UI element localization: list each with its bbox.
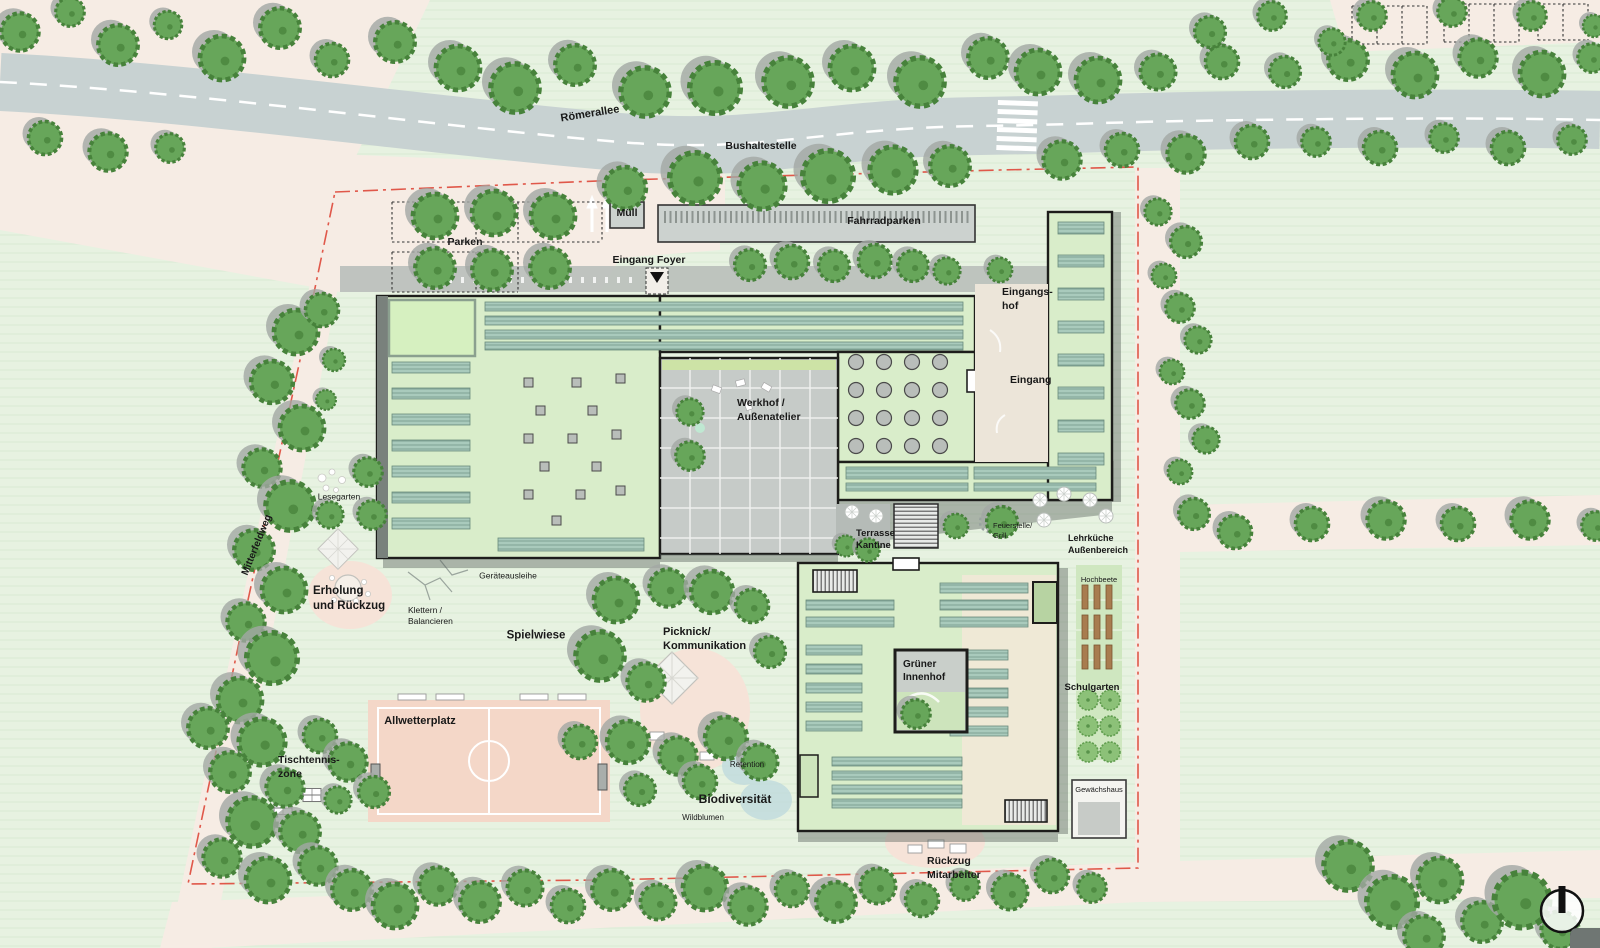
label-geraeteausleihe: Geräteausleihe — [479, 570, 537, 581]
label-wildblumen: Wildblumen — [682, 813, 724, 823]
bike-parking — [658, 205, 975, 242]
label-eingang-foyer: Eingang Foyer — [613, 254, 686, 268]
label-werkhof: Werkhof / Außenatelier — [737, 397, 801, 424]
label-eingangshof: Eingangs- hof — [1002, 286, 1053, 313]
label-picknick: Picknick/ Kommunikation — [663, 625, 746, 654]
label-muell: Müll — [617, 207, 638, 221]
label-bushaltestelle: Bushaltestelle — [725, 140, 796, 154]
foyer-entrance-icon — [646, 268, 668, 294]
label-eingang: Eingang — [1010, 374, 1051, 388]
site-plan-drawing — [0, 0, 1600, 948]
label-gruener-innenhof: Grüner Innenhof — [903, 658, 945, 684]
stairs-icon — [813, 570, 857, 592]
label-allwetterplatz: Allwetterplatz — [384, 714, 456, 728]
label-schulgarten: Schulgarten — [1065, 682, 1120, 694]
label-gewaechshaus: Gewächshaus — [1075, 785, 1123, 795]
site-plan: Römerallee Bushaltestelle Parken Müll Fa… — [0, 0, 1600, 948]
stairs-icon — [1005, 800, 1047, 822]
school-garden — [1076, 565, 1122, 762]
label-lesegarten: Lesegarten — [318, 491, 361, 502]
label-retention: Retention — [730, 760, 764, 770]
label-terrasse-kantine: Terrasse Kantine — [856, 528, 895, 553]
label-tischtennis: Tischtennis- zone — [278, 754, 340, 781]
label-fahrradparken: Fahrradparken — [847, 215, 921, 229]
label-erholung: Erholung und Rückzug — [313, 584, 385, 614]
label-parken: Parken — [447, 236, 482, 250]
label-biodiversitaet: Biodiversität — [699, 792, 772, 808]
label-lehrkueche: Lehrküche Außenbereich — [1068, 533, 1128, 556]
label-feuerstelle-grill: Feuerstelle/ Grill — [993, 521, 1032, 541]
label-rueckzug-mitarbeiter: Rückzug Mitarbeiter — [927, 855, 981, 882]
label-klettern: Klettern / Balancieren — [408, 605, 453, 627]
label-spielwiese: Spielwiese — [507, 629, 566, 644]
label-hochbeete: Hochbeete — [1081, 575, 1117, 585]
